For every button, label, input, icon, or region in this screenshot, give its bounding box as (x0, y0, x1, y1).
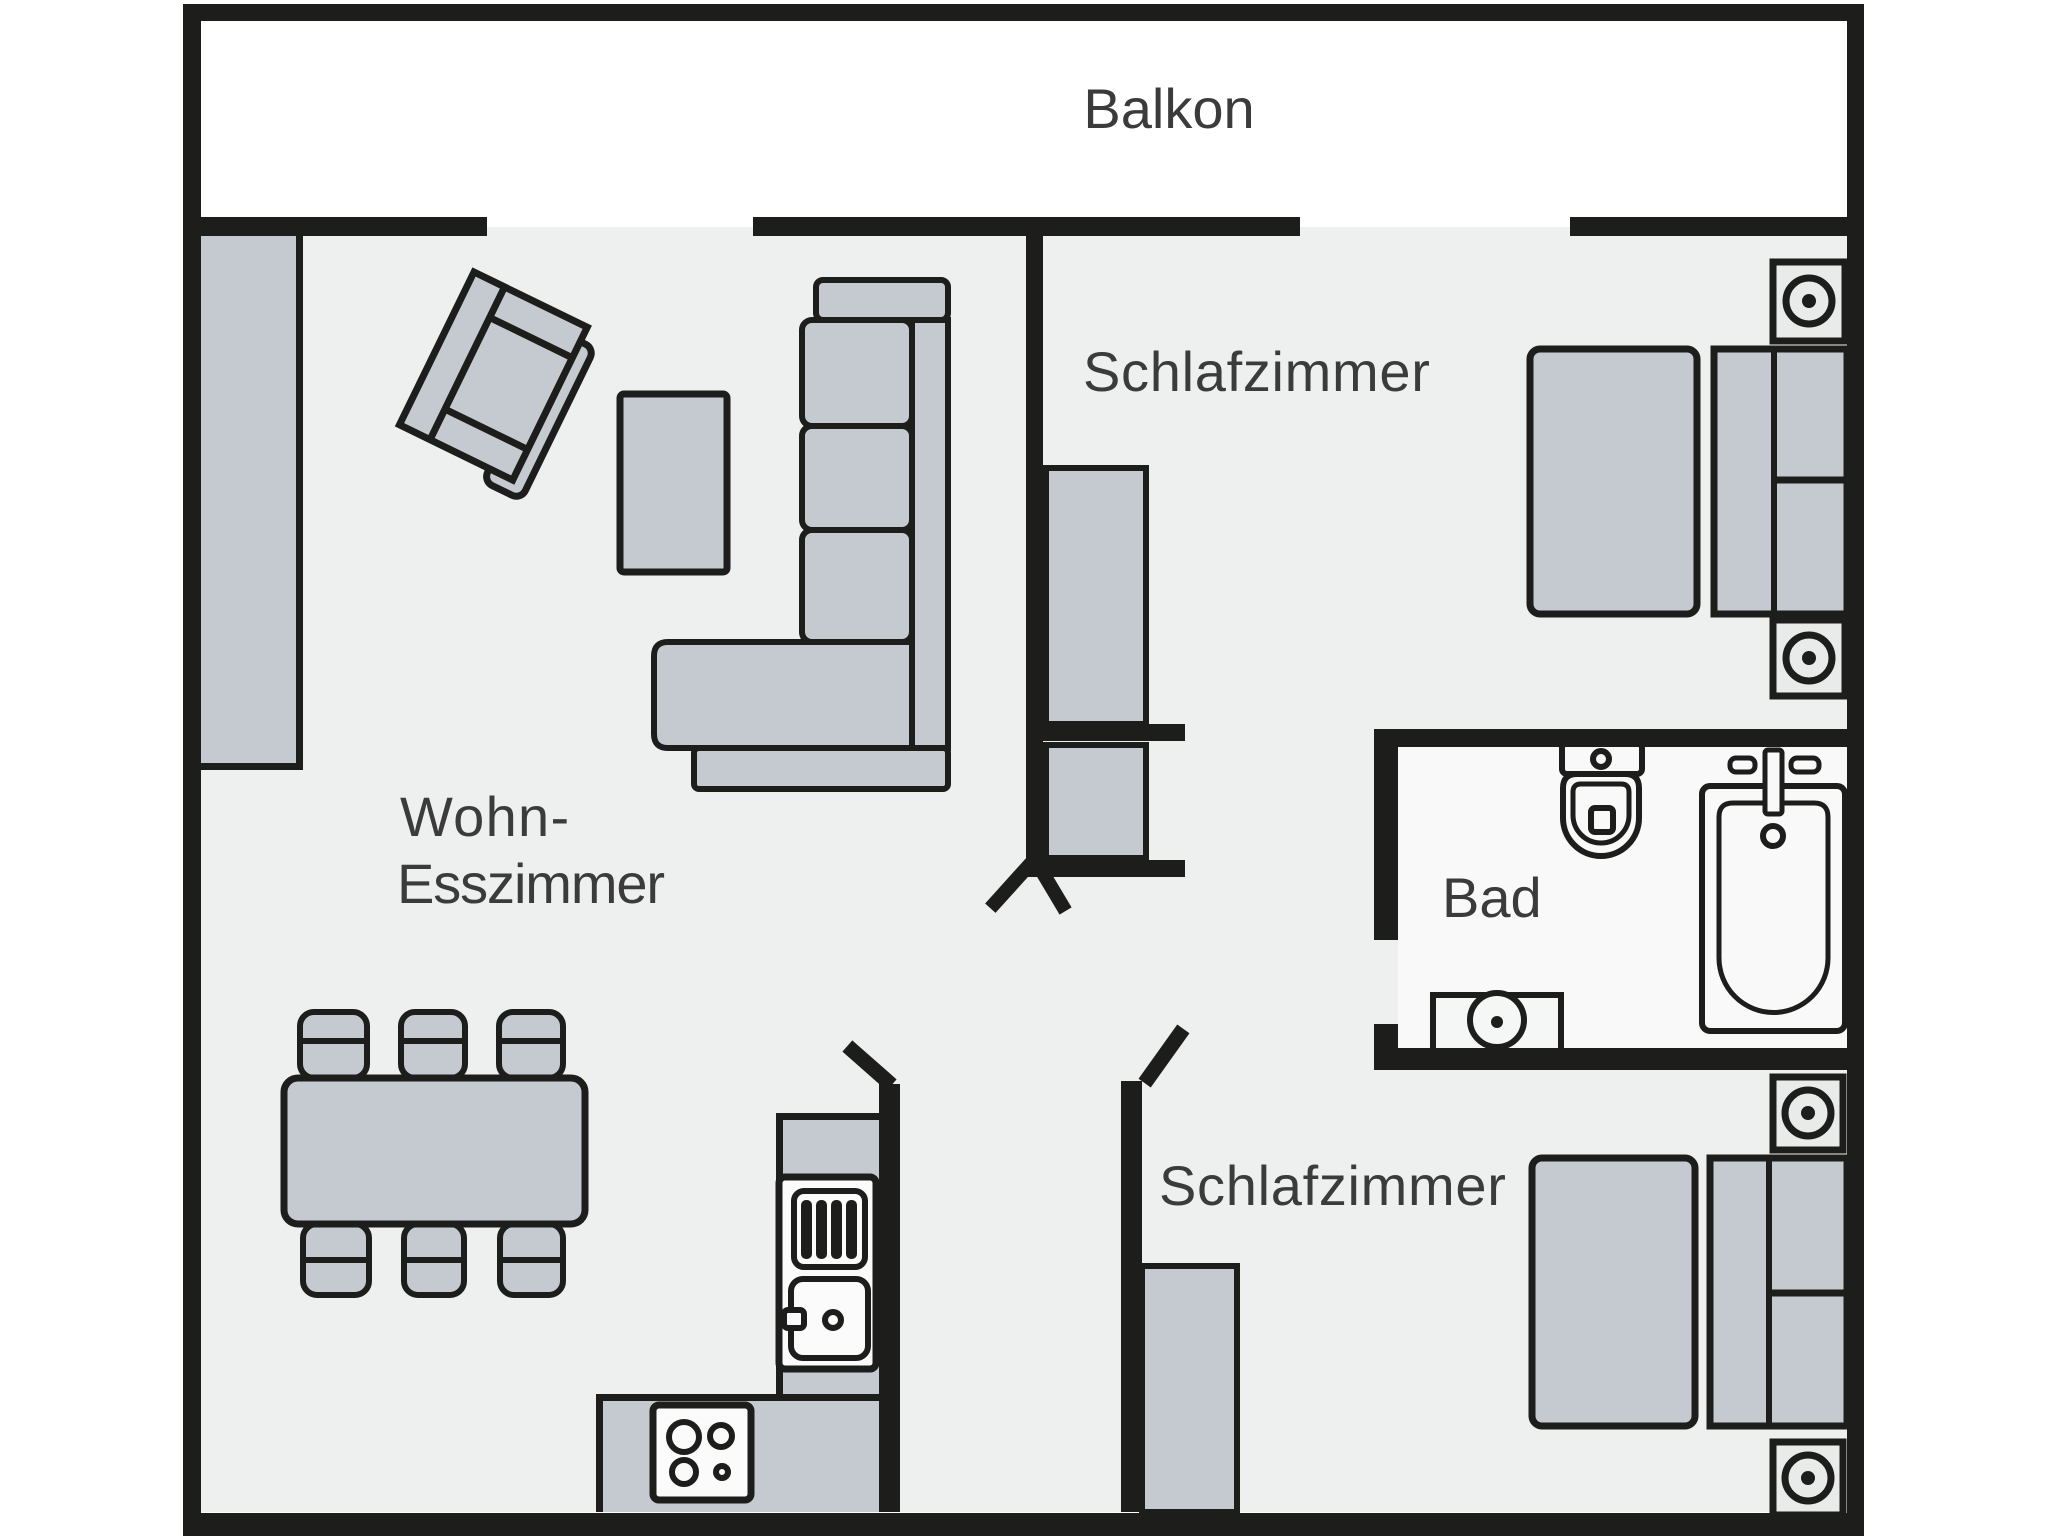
svg-text:Bad: Bad (1442, 866, 1542, 929)
svg-text:Wohn-: Wohn- (400, 785, 570, 848)
svg-text:Balkon: Balkon (1083, 77, 1254, 140)
svg-text:Esszimmer: Esszimmer (397, 852, 664, 915)
svg-text:Schlafzimmer: Schlafzimmer (1159, 1154, 1507, 1217)
svg-text:Schlafzimmer: Schlafzimmer (1083, 340, 1431, 403)
